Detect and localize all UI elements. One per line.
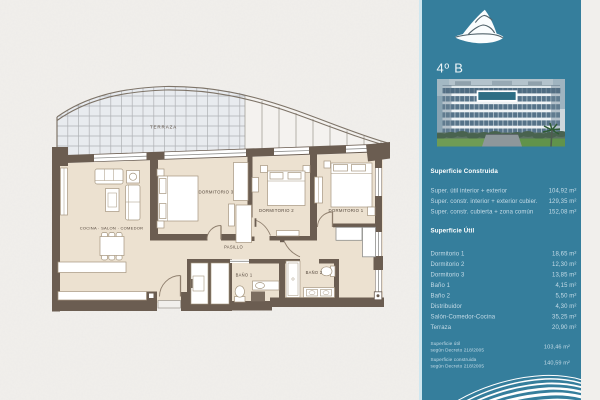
svg-text:4º B: 4º B — [437, 61, 464, 76]
svg-text:Dormitorio 1: Dormitorio 1 — [431, 252, 465, 258]
svg-text:20,90 m²: 20,90 m² — [552, 325, 576, 331]
svg-text:Superficie útil: Superficie útil — [431, 341, 461, 346]
svg-text:BAÑO 1: BAÑO 1 — [236, 273, 253, 278]
svg-text:35,25 m²: 35,25 m² — [552, 315, 576, 321]
svg-text:según Decreto 218/2005: según Decreto 218/2005 — [431, 364, 485, 369]
svg-text:4,15 m²: 4,15 m² — [555, 283, 576, 289]
svg-text:Salón-Comedor-Cocina: Salón-Comedor-Cocina — [431, 315, 496, 321]
svg-text:13,85 m²: 13,85 m² — [552, 273, 576, 279]
svg-text:103,46 m²: 103,46 m² — [544, 345, 570, 351]
svg-text:Baño 1: Baño 1 — [431, 283, 451, 289]
svg-text:Superficie Construida: Superficie Construida — [431, 168, 499, 175]
svg-text:Dormitorio 2: Dormitorio 2 — [431, 262, 465, 268]
svg-text:4,30 m²: 4,30 m² — [555, 304, 576, 310]
svg-text:Baño 2: Baño 2 — [431, 294, 451, 300]
svg-text:Super. constr. cubierta + zona: Super. constr. cubierta + zona común — [431, 210, 534, 216]
svg-text:129,35 m²: 129,35 m² — [549, 199, 577, 205]
svg-text:DORMITORIO 3: DORMITORIO 3 — [198, 190, 233, 195]
svg-text:PASILLO: PASILLO — [224, 245, 243, 250]
svg-text:Superficie Útil: Superficie Útil — [431, 228, 475, 235]
svg-text:COCINA · SALON · COMEDOR: COCINA · SALON · COMEDOR — [80, 226, 144, 231]
svg-text:140,59 m²: 140,59 m² — [544, 361, 570, 367]
svg-text:104,92 m²: 104,92 m² — [549, 189, 577, 195]
svg-text:BAÑO 2: BAÑO 2 — [306, 270, 323, 275]
svg-text:18,65 m²: 18,65 m² — [552, 252, 576, 258]
svg-text:DORMITORIO 2: DORMITORIO 2 — [259, 208, 294, 213]
svg-text:152,08 m²: 152,08 m² — [549, 210, 577, 216]
svg-text:12,30 m²: 12,30 m² — [552, 262, 576, 268]
svg-text:Distribuidor: Distribuidor — [431, 304, 463, 310]
svg-text:5,50 m²: 5,50 m² — [555, 294, 576, 300]
svg-text:TERRAZA: TERRAZA — [150, 125, 177, 130]
svg-text:Superficie construida: Superficie construida — [431, 357, 477, 362]
svg-text:Super. útil interior + exterio: Super. útil interior + exterior — [431, 189, 508, 195]
svg-text:Super. constr. interior + exte: Super. constr. interior + exterior cubie… — [431, 199, 538, 205]
svg-text:según Decreto 218/2005: según Decreto 218/2005 — [431, 348, 485, 353]
svg-text:Dormitorio 3: Dormitorio 3 — [431, 273, 465, 279]
svg-text:Terraza: Terraza — [431, 325, 452, 331]
svg-text:DORMITORIO 1: DORMITORIO 1 — [328, 208, 363, 213]
